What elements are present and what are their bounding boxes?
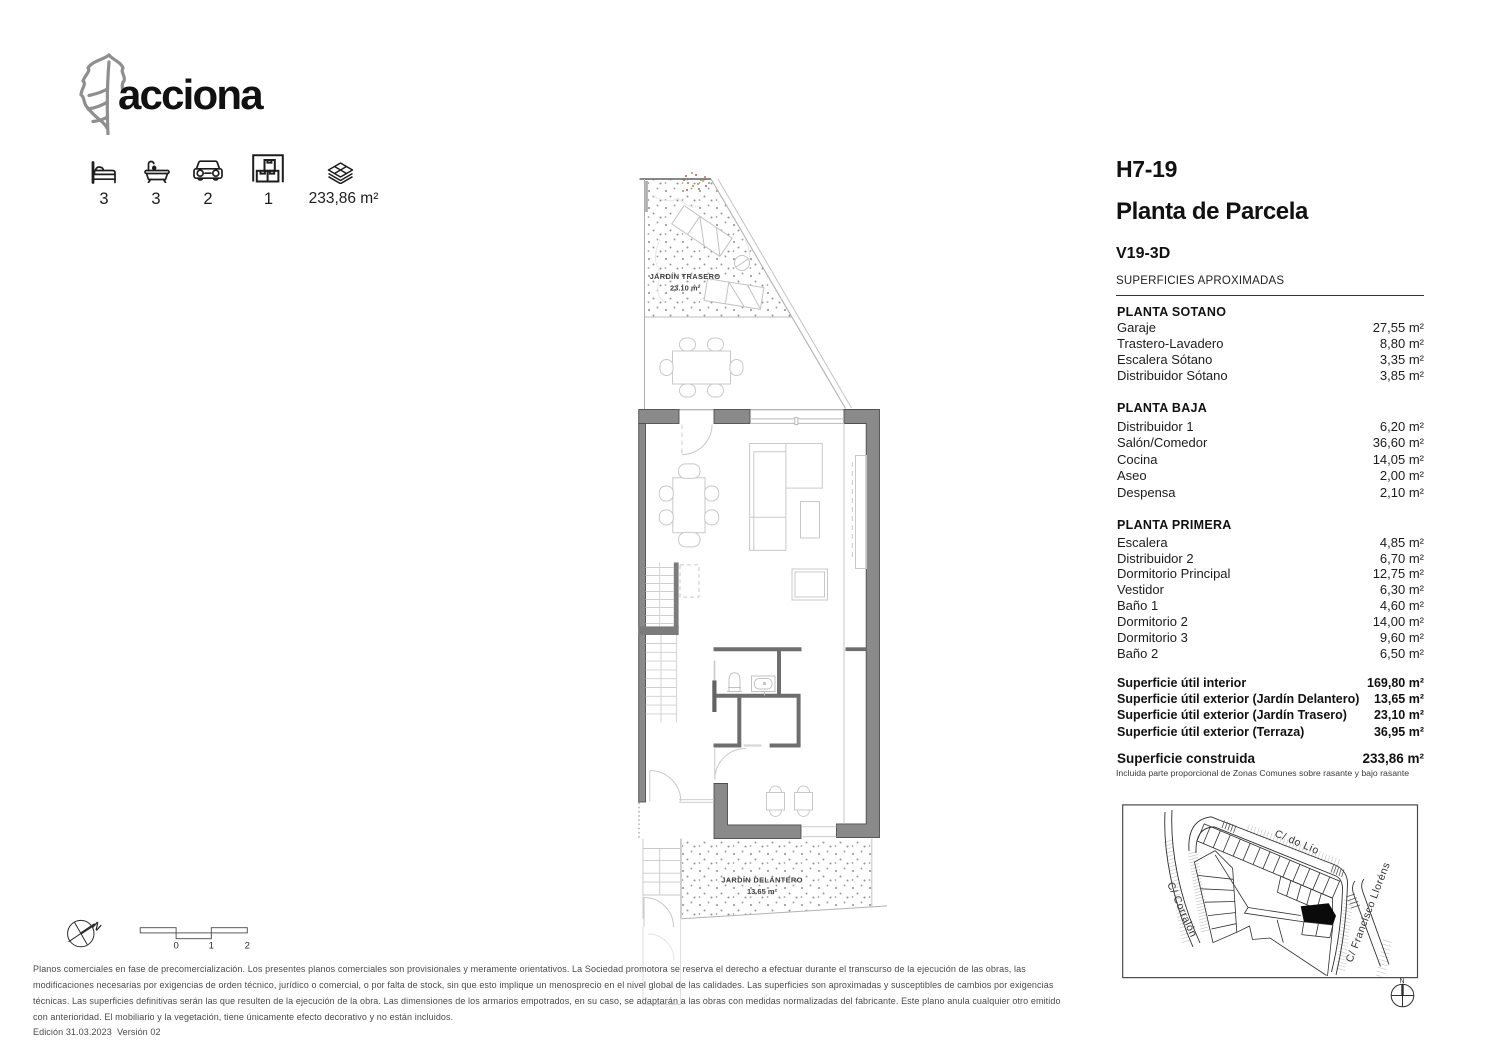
svg-text:1: 1 xyxy=(209,941,214,952)
svg-text:2: 2 xyxy=(245,941,250,952)
svg-text:N: N xyxy=(1400,978,1405,985)
svg-text:0: 0 xyxy=(173,941,178,952)
svg-text:N: N xyxy=(90,920,104,934)
